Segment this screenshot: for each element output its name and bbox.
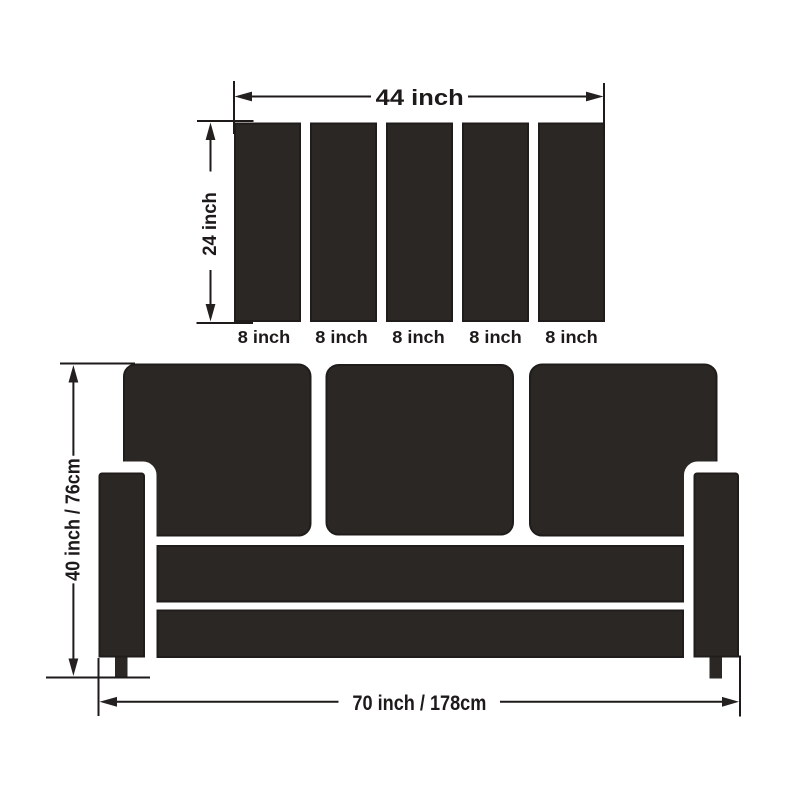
svg-text:44 inch: 44 inch: [376, 85, 464, 110]
svg-text:70 inch / 178cm: 70 inch / 178cm: [352, 692, 486, 715]
svg-text:8 inch: 8 inch: [315, 327, 368, 347]
svg-text:40 inch / 76cm: 40 inch / 76cm: [63, 458, 85, 581]
svg-text:8 inch: 8 inch: [545, 327, 598, 347]
svg-text:24 inch: 24 inch: [199, 192, 221, 256]
svg-text:8 inch: 8 inch: [469, 327, 522, 347]
svg-text:8 inch: 8 inch: [392, 327, 445, 347]
svg-text:8 inch: 8 inch: [238, 327, 291, 347]
